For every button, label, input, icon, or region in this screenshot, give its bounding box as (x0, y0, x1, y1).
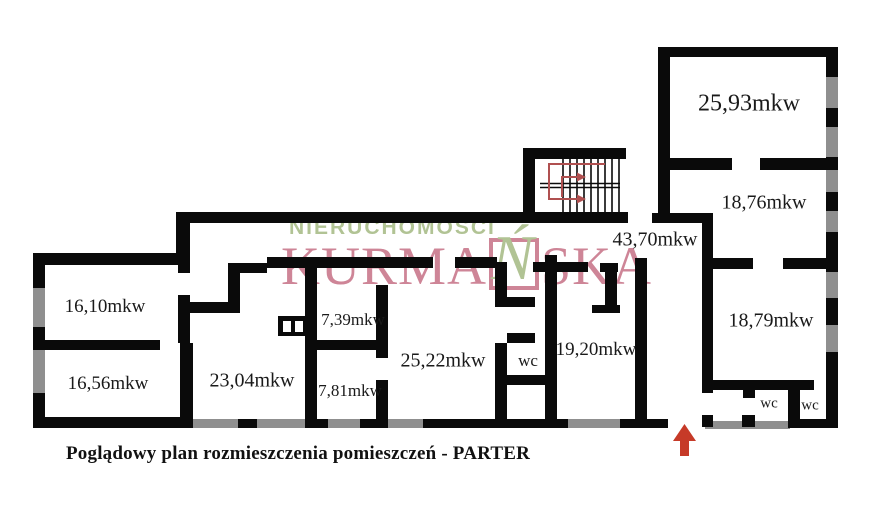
room-area-label-corridor-43-70: 43,70mkw (613, 229, 698, 252)
chimney-flue-icon (278, 316, 308, 336)
room-area-label-7-39: 7,39mkw (321, 310, 385, 330)
room-area-label-wc-middle: wc (518, 351, 538, 371)
floorplan-page: NIERUCHOMOŚCI KURMAŃSKA (0, 0, 870, 519)
room-area-label-wc-right-2: wc (801, 398, 819, 415)
room-area-label-19-20: 19,20mkw (556, 339, 637, 361)
room-area-label-wc-right-1: wc (760, 396, 778, 413)
room-area-label-25-22: 25,22mkw (401, 350, 486, 373)
entrance-arrow-icon (673, 424, 696, 456)
room-area-label-18-76: 18,76mkw (722, 192, 807, 215)
room-area-label-23-04: 23,04mkw (210, 370, 295, 393)
room-area-label-7-81: 7,81mkw (318, 381, 382, 401)
floorplan-drawing (0, 0, 870, 519)
room-area-label-18-79: 18,79mkw (729, 310, 814, 333)
staircase-icon (540, 159, 620, 212)
plan-caption: Poglądowy plan rozmieszczenia pomieszcze… (66, 443, 530, 465)
room-area-label-25-93: 25,93mkw (698, 91, 800, 118)
room-area-label-16-56: 16,56mkw (68, 373, 149, 395)
room-area-label-16-10: 16,10mkw (65, 296, 146, 318)
